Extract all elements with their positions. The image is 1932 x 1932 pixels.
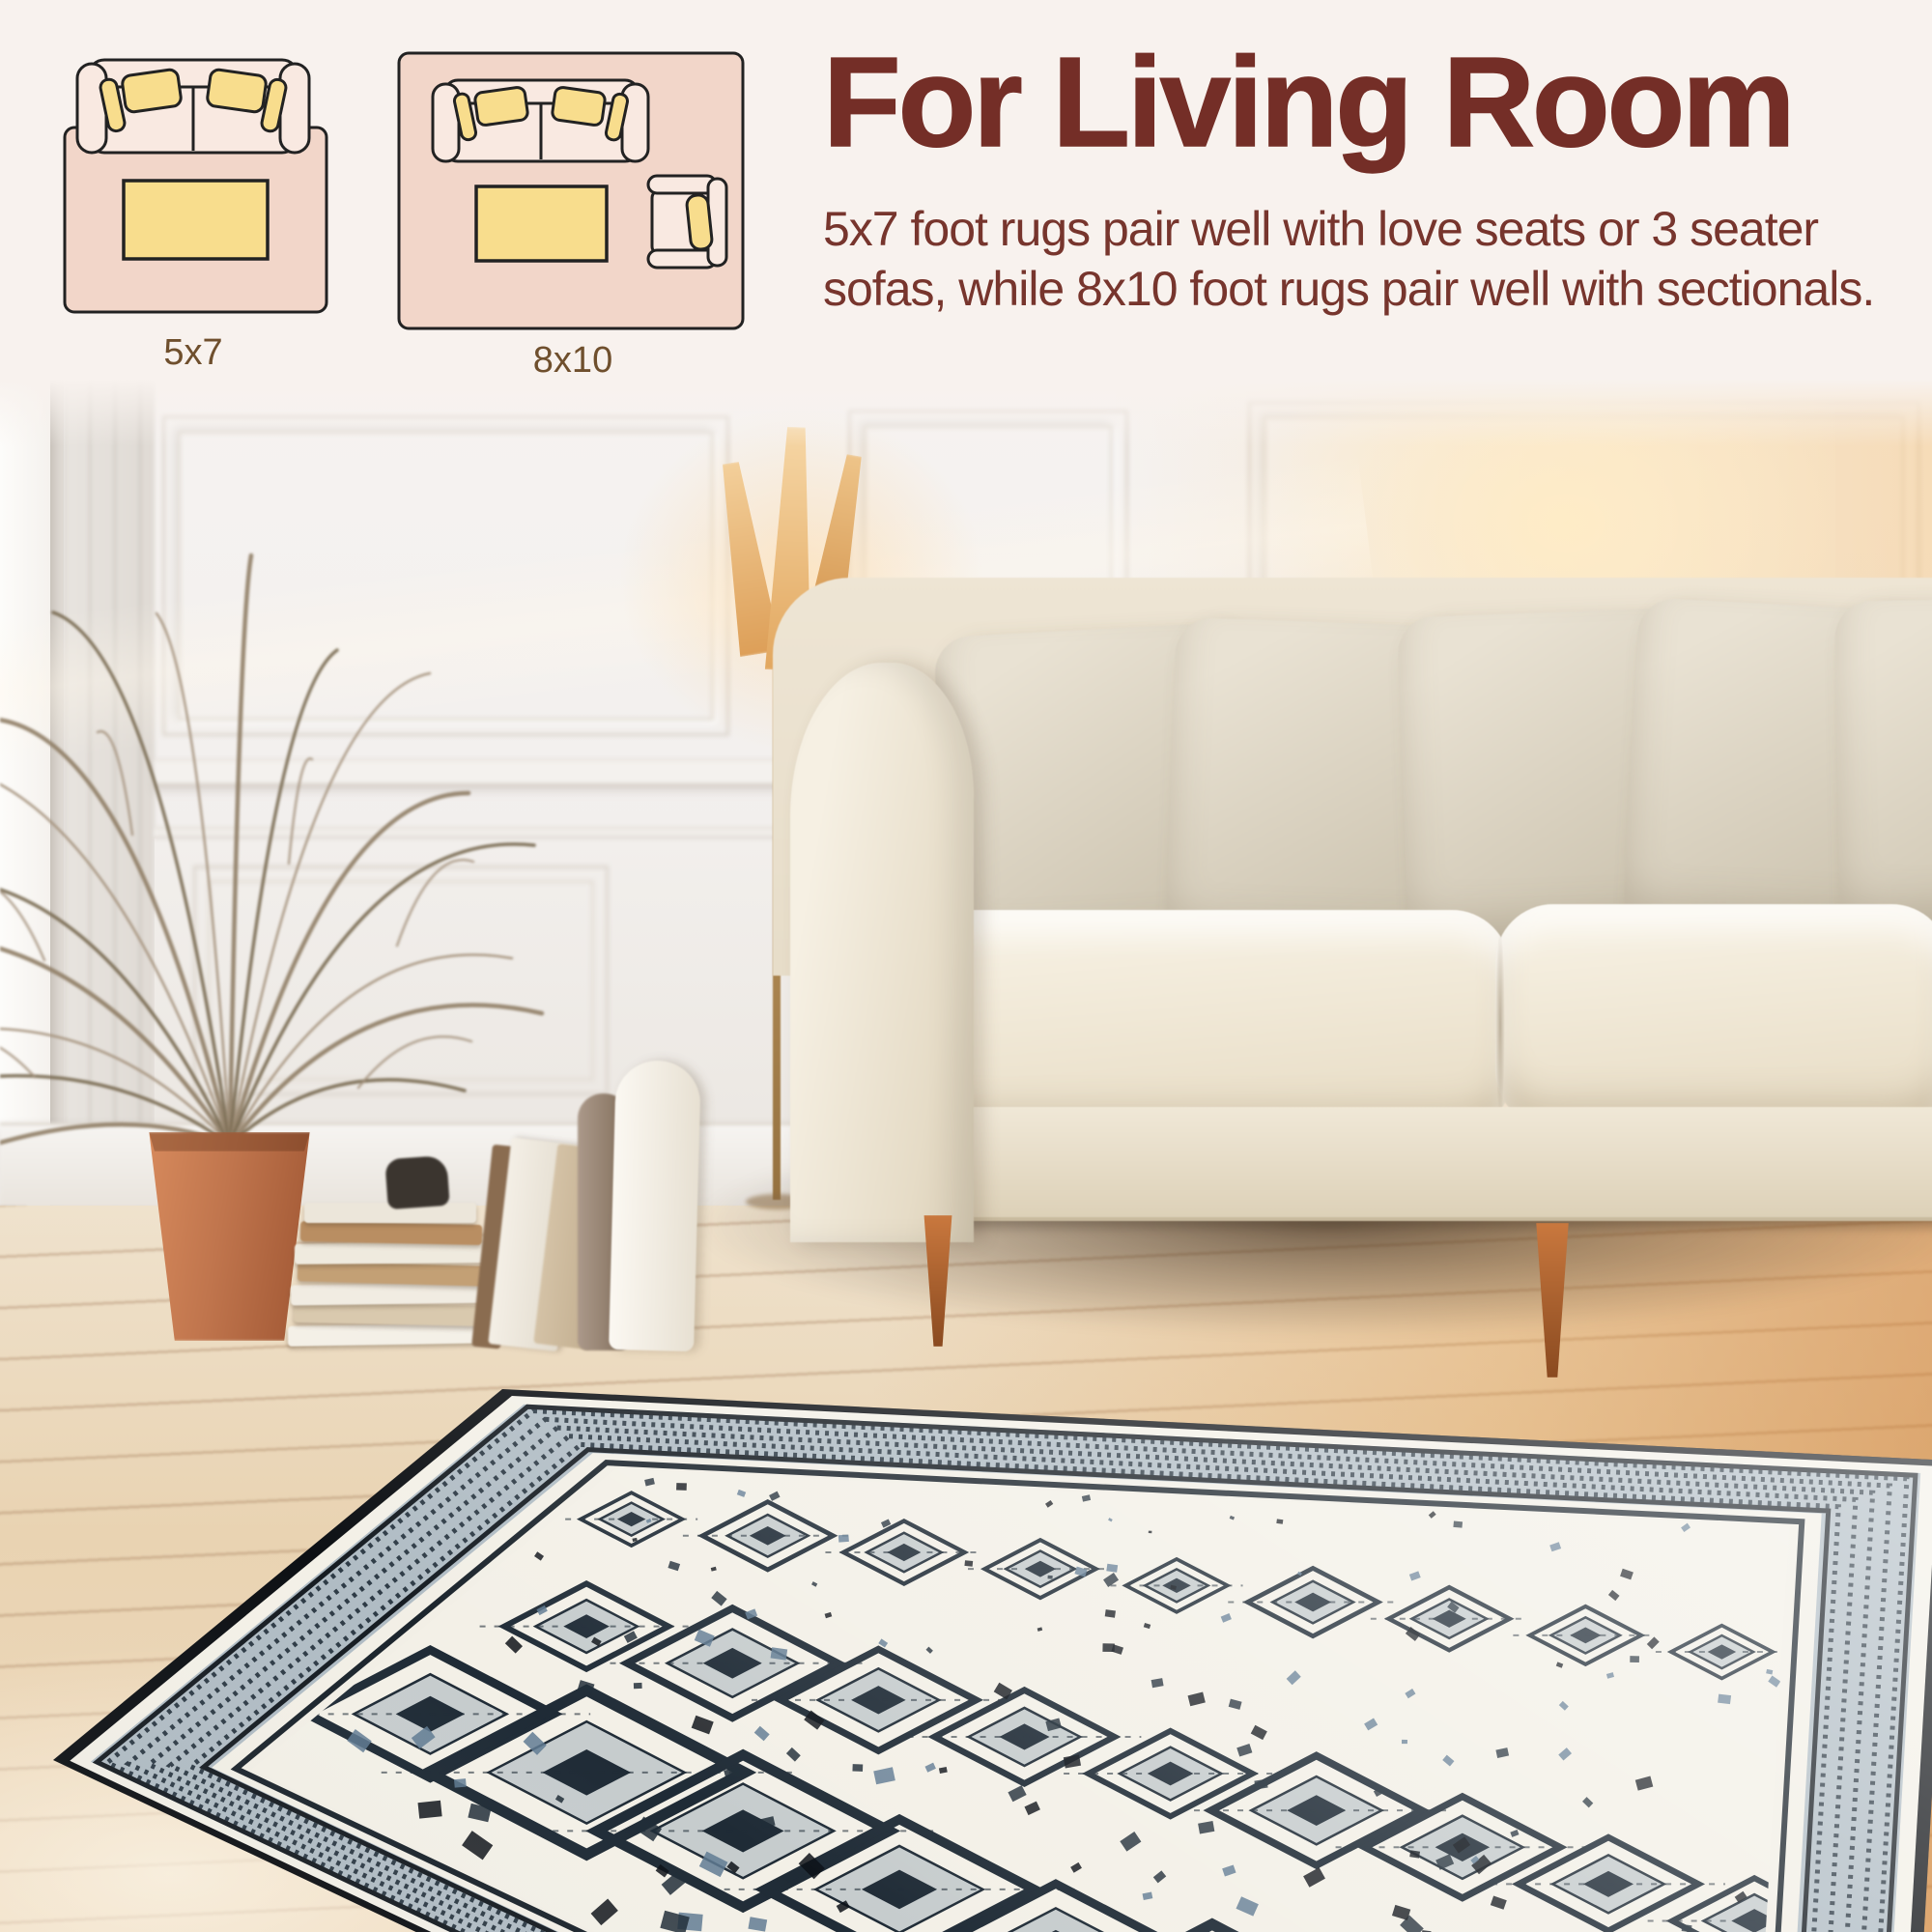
armchair-top-view-icon [648, 176, 726, 268]
banner: For Living Room 5x7 foot rugs pair well … [0, 0, 1932, 379]
banner-fade [0, 379, 1932, 446]
rug-product-infographic: For Living Room 5x7 foot rugs pair well … [0, 0, 1932, 1932]
loveseat-top-view-icon [77, 60, 309, 153]
page-title: For Living Room [823, 29, 1924, 175]
description-line-2: sofas, while 8x10 foot rugs pair well wi… [823, 259, 1932, 319]
sofa-top-view-icon [433, 80, 648, 161]
rug-graphic [53, 1389, 1932, 1932]
coffee-table-icon [476, 186, 607, 261]
diagram-8x10 [389, 24, 756, 353]
description-line-1: 5x7 foot rugs pair well with love seats … [823, 199, 1932, 259]
description-text: 5x7 foot rugs pair well with love seats … [823, 199, 1932, 319]
diagram-5x7 [39, 29, 348, 348]
coffee-table-icon [124, 181, 268, 259]
